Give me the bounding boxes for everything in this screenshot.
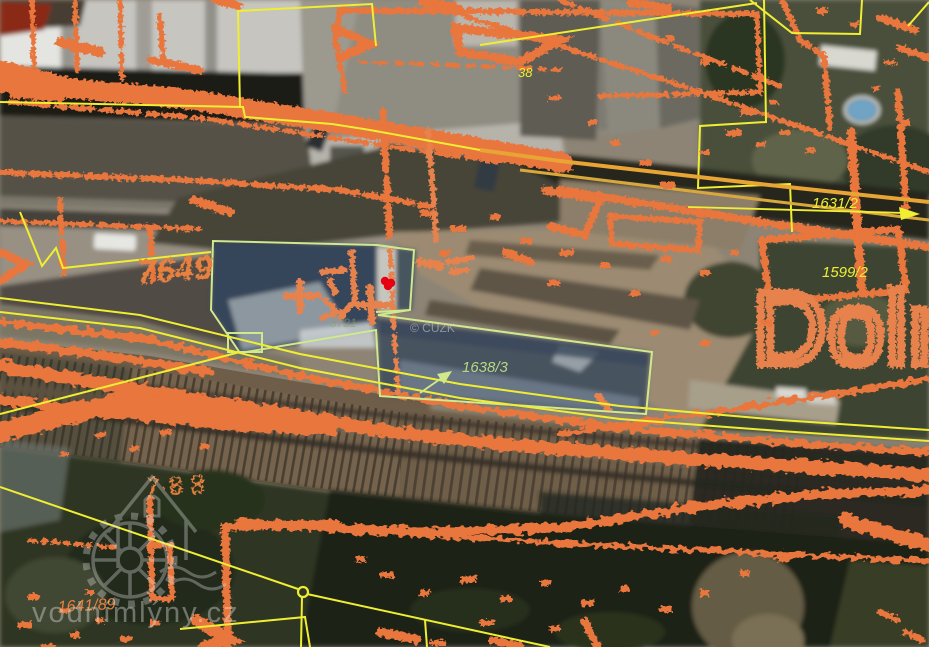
- svg-text:38: 38: [518, 65, 533, 80]
- svg-text:vodnímlýny.cz: vodnímlýny.cz: [32, 597, 240, 629]
- svg-text:© ČÚZK: © ČÚZK: [410, 320, 455, 335]
- svg-text:3721: 3721: [330, 316, 357, 330]
- svg-text:1631/2: 1631/2: [812, 195, 859, 212]
- svg-text:7649: 7649: [136, 249, 214, 292]
- svg-text:Doln: Doln: [752, 271, 929, 387]
- svg-text:1599/2: 1599/2: [822, 264, 869, 281]
- svg-text:1638/3: 1638/3: [462, 359, 509, 376]
